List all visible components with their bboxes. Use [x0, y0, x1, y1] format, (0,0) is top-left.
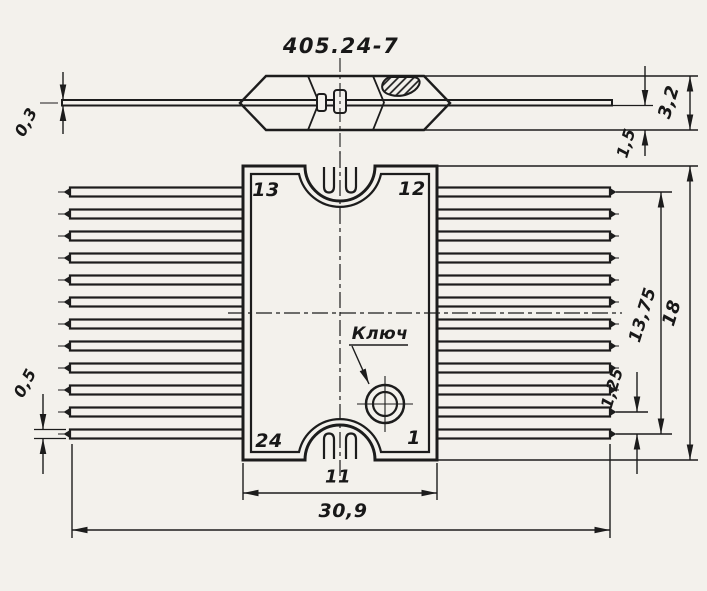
- pin-tip: [64, 188, 71, 196]
- pin-tip: [64, 386, 71, 394]
- pin-lead: [70, 298, 243, 307]
- pin-lead: [437, 364, 610, 373]
- pin-lead: [437, 276, 610, 285]
- pin-number-top-left: 13: [252, 179, 279, 201]
- pins-left: [58, 188, 243, 439]
- pin-tip: [64, 364, 71, 372]
- pin-tip: [64, 210, 71, 218]
- pin-lead: [70, 386, 243, 395]
- drawing-number: 405.24-7: [283, 34, 399, 58]
- pin-number-bottom-right: 1: [407, 427, 421, 449]
- pin-lead: [437, 254, 610, 263]
- side-view: [40, 58, 698, 158]
- pin-tip: [64, 232, 71, 240]
- key-leader-arrow: [352, 346, 369, 384]
- pin-lead: [70, 188, 243, 197]
- pin-lead: [70, 342, 243, 351]
- pin-lead: [437, 320, 610, 329]
- pin-tip: [610, 342, 617, 350]
- hatched-seal-area: [382, 77, 419, 96]
- pin-tip: [610, 430, 617, 438]
- bottom-notch-tab-left: [324, 434, 334, 460]
- pin-tip: [610, 320, 617, 328]
- pin-lead: [437, 430, 610, 439]
- pin-tip: [64, 320, 71, 328]
- pin-lead: [70, 320, 243, 329]
- pin-tip: [64, 276, 71, 284]
- top-view: [34, 152, 698, 538]
- pin-tip: [64, 342, 71, 350]
- pin-tip: [64, 298, 71, 306]
- pin-lead: [437, 298, 610, 307]
- pin-number-top-right: 12: [398, 178, 425, 200]
- technical-drawing: 405.24-7 0,3 3,2 1,5 13 12 24 1 Ключ 11 …: [0, 0, 707, 591]
- pin-lead: [70, 254, 243, 263]
- pin-tip: [610, 298, 617, 306]
- pin-lead: [437, 210, 610, 219]
- pin-lead: [70, 276, 243, 285]
- dim-label-overall-width: 30,9: [319, 500, 368, 522]
- key-label: Ключ: [352, 324, 409, 344]
- pin-tip: [64, 408, 71, 416]
- profile-tab-left: [317, 94, 326, 111]
- pin-tip: [610, 232, 617, 240]
- pin-tip: [64, 254, 71, 262]
- pin-lead: [70, 430, 243, 439]
- pin-lead: [70, 232, 243, 241]
- bottom-notch-tab-right: [346, 434, 356, 460]
- top-notch-tab-right: [346, 167, 356, 193]
- pin-tip: [610, 188, 617, 196]
- pin-tip: [610, 254, 617, 262]
- pin-lead: [437, 342, 610, 351]
- pin-lead: [70, 408, 243, 417]
- pin-tip: [610, 210, 617, 218]
- pin-lead: [70, 364, 243, 373]
- pin-lead: [70, 210, 243, 219]
- pin-lead: [437, 408, 610, 417]
- top-notch-tab-left: [324, 167, 334, 193]
- pin-lead: [437, 232, 610, 241]
- pin-number-bottom-left: 24: [255, 430, 282, 452]
- pin-tip: [610, 276, 617, 284]
- pin-lead: [437, 386, 610, 395]
- pin-lead: [437, 188, 610, 197]
- dim-label-body-width: 11: [325, 467, 351, 488]
- pin-tip: [64, 430, 71, 438]
